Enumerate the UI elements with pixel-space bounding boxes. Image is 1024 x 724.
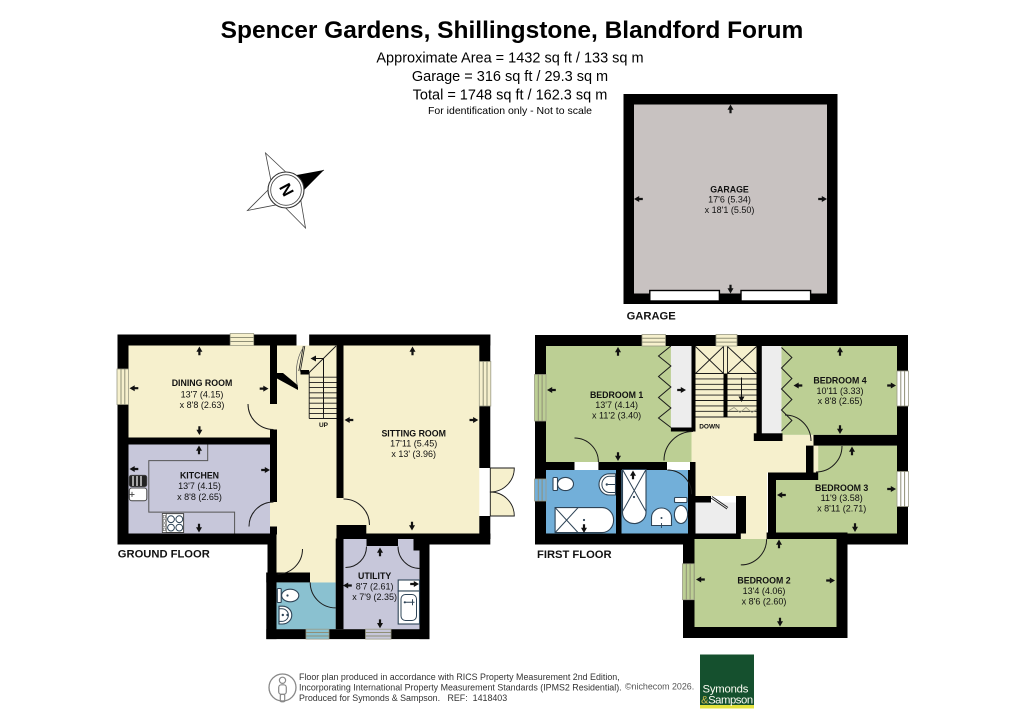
svg-text:Approximate Area = 1432 sq ft: Approximate Area = 1432 sq ft / 133 sq m [376, 51, 643, 67]
svg-text:Spencer Gardens, Shillingstone: Spencer Gardens, Shillingstone, Blandfor… [221, 17, 804, 44]
svg-text:17'11 (5.45): 17'11 (5.45) [390, 439, 437, 449]
svg-text:11'9 (3.58): 11'9 (3.58) [821, 493, 863, 503]
svg-text:x 8'11 (2.71): x 8'11 (2.71) [817, 504, 866, 514]
svg-text:Floor plan produced in accorda: Floor plan produced in accordance with R… [299, 672, 620, 682]
svg-text:GARAGE: GARAGE [710, 184, 749, 194]
svg-text:UP: UP [319, 422, 329, 429]
svg-text:DINING ROOM: DINING ROOM [172, 378, 233, 388]
svg-text:BEDROOM 2: BEDROOM 2 [737, 575, 790, 585]
svg-text:KITCHEN: KITCHEN [180, 471, 219, 481]
svg-text:Garage = 316 sq ft / 29.3 sq m: Garage = 316 sq ft / 29.3 sq m [412, 69, 608, 85]
svg-text:GARAGE: GARAGE [627, 310, 677, 322]
svg-text:BEDROOM 4: BEDROOM 4 [813, 375, 866, 385]
svg-text:x 8'6 (2.60): x 8'6 (2.60) [742, 596, 787, 606]
svg-text:13'7 (4.15): 13'7 (4.15) [181, 389, 224, 399]
svg-text:x 7'9 (2.35): x 7'9 (2.35) [352, 592, 397, 602]
svg-text:SITTING ROOM: SITTING ROOM [381, 428, 446, 438]
svg-text:BEDROOM 1: BEDROOM 1 [590, 390, 643, 400]
svg-text:10'11 (3.33): 10'11 (3.33) [816, 386, 863, 396]
svg-text:©nichecom 2026.: ©nichecom 2026. [625, 682, 694, 692]
svg-text:x 8'8 (2.65): x 8'8 (2.65) [818, 396, 863, 406]
svg-text:13'7 (4.15): 13'7 (4.15) [178, 481, 221, 491]
svg-text:DOWN: DOWN [699, 424, 720, 431]
svg-text:GROUND FLOOR: GROUND FLOOR [118, 549, 210, 561]
svg-text:x 8'8 (2.63): x 8'8 (2.63) [180, 400, 225, 410]
svg-text:Incorporating International Pr: Incorporating International Property Mea… [299, 683, 622, 693]
svg-text:x 18'1 (5.50): x 18'1 (5.50) [705, 205, 755, 215]
svg-text:Produced for Symonds & Sampson: Produced for Symonds & Sampson. REF: 141… [299, 693, 507, 703]
svg-text:For identification only - Not: For identification only - Not to scale [428, 105, 592, 117]
svg-text:Total = 1748 sq ft / 162.3 sq: Total = 1748 sq ft / 162.3 sq m [413, 88, 608, 104]
svg-text:FIRST FLOOR: FIRST FLOOR [537, 549, 612, 561]
svg-text:BEDROOM 3: BEDROOM 3 [815, 483, 868, 493]
svg-text:x 11'2 (3.40): x 11'2 (3.40) [592, 411, 641, 421]
svg-text:&Sampson: &Sampson [701, 695, 753, 707]
svg-text:13'7 (4.14): 13'7 (4.14) [595, 400, 638, 410]
svg-text:17'6 (5.34): 17'6 (5.34) [708, 195, 751, 205]
svg-text:x 13' (3.96): x 13' (3.96) [391, 449, 436, 459]
svg-text:UTILITY: UTILITY [358, 571, 391, 581]
svg-text:13'4 (4.06): 13'4 (4.06) [743, 586, 786, 596]
svg-text:8'7 (2.61): 8'7 (2.61) [356, 582, 394, 592]
svg-text:x 8'8 (2.65): x 8'8 (2.65) [177, 492, 222, 502]
